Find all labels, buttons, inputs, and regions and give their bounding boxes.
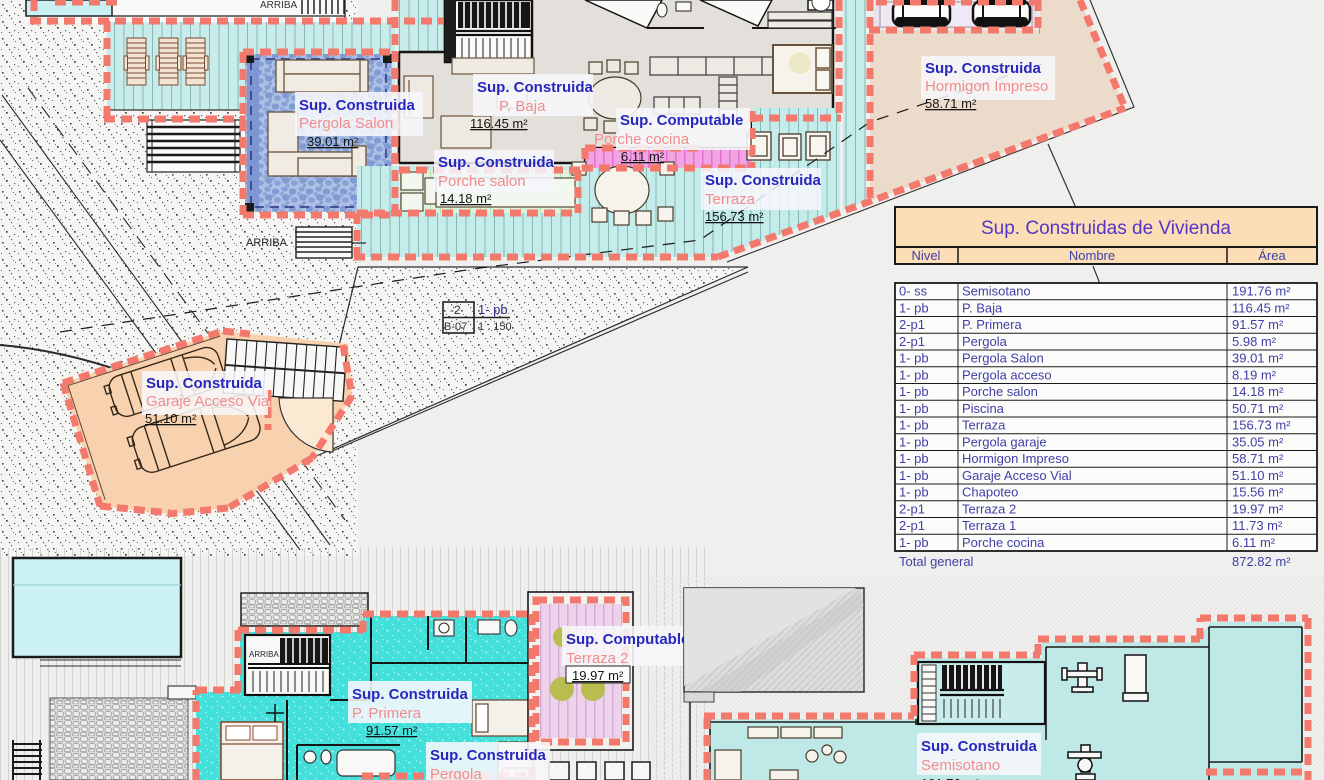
svg-text:P. Primera: P. Primera xyxy=(962,317,1022,332)
svg-text:91.57 m²: 91.57 m² xyxy=(366,723,418,738)
svg-text:58.71 m²: 58.71 m² xyxy=(925,96,977,111)
svg-text:14.18 m²: 14.18 m² xyxy=(1232,384,1284,399)
svg-text:1- pb: 1- pb xyxy=(478,302,508,317)
svg-text:Garaje Acceso Vial: Garaje Acceso Vial xyxy=(146,393,272,410)
svg-text:Pergola: Pergola xyxy=(962,334,1008,349)
svg-text:Terraza 1: Terraza 1 xyxy=(962,518,1016,533)
svg-text:6.11 m²: 6.11 m² xyxy=(1232,535,1276,550)
svg-text:1- pb: 1- pb xyxy=(899,418,929,433)
svg-text:Sup. Computable: Sup. Computable xyxy=(566,631,689,648)
svg-text:Sup. Construida: Sup. Construida xyxy=(352,686,468,703)
svg-text:Porche salon: Porche salon xyxy=(438,173,526,190)
svg-text:Piscina: Piscina xyxy=(962,401,1005,416)
svg-text:1- pb: 1- pb xyxy=(899,434,929,449)
svg-text:39.01 m²: 39.01 m² xyxy=(1232,351,1284,366)
svg-text:19.97 m²: 19.97 m² xyxy=(572,668,624,683)
svg-text:Hormigon Impreso: Hormigon Impreso xyxy=(962,451,1069,466)
svg-text:Terraza: Terraza xyxy=(705,191,756,208)
svg-text:Nivel: Nivel xyxy=(912,248,941,263)
svg-text:191.76 m²: 191.76 m² xyxy=(1232,284,1291,299)
svg-text:116.45 m²: 116.45 m² xyxy=(1232,300,1290,315)
svg-text:58.71 m²: 58.71 m² xyxy=(1232,451,1284,466)
svg-text:Sup. Construida: Sup. Construida xyxy=(477,79,593,96)
svg-text:2-p1: 2-p1 xyxy=(899,334,925,349)
svg-text:Chapoteo: Chapoteo xyxy=(962,485,1018,500)
svg-text:Porche cocina: Porche cocina xyxy=(594,131,690,148)
svg-text:Pergola acceso: Pergola acceso xyxy=(962,367,1052,382)
svg-text:P. Baja: P. Baja xyxy=(962,300,1003,315)
svg-text:Garaje Acceso Vial: Garaje Acceso Vial xyxy=(962,468,1072,483)
svg-text:19.97 m²: 19.97 m² xyxy=(1232,501,1284,516)
svg-text:-2: -2 xyxy=(450,303,461,317)
svg-text:ARRIBA: ARRIBA xyxy=(260,0,298,11)
svg-text:5.98 m²: 5.98 m² xyxy=(1232,334,1277,349)
svg-text:0- ss: 0- ss xyxy=(899,284,928,299)
svg-text:1- pb: 1- pb xyxy=(899,351,929,366)
svg-text:2-p1: 2-p1 xyxy=(899,518,925,533)
svg-text:Semisotano: Semisotano xyxy=(962,284,1031,299)
svg-text:91.57 m²: 91.57 m² xyxy=(1232,317,1284,332)
svg-text:6.11 m²: 6.11 m² xyxy=(621,149,665,164)
svg-text:1- pb: 1- pb xyxy=(899,401,929,416)
svg-text:P. Primera: P. Primera xyxy=(352,705,422,722)
svg-text:15.56 m²: 15.56 m² xyxy=(1232,485,1284,500)
svg-text:51.10 m²: 51.10 m² xyxy=(1232,468,1284,483)
svg-text:Sup. Construidas de Vivienda: Sup. Construidas de Vivienda xyxy=(981,218,1231,239)
svg-text:1- pb: 1- pb xyxy=(899,451,929,466)
svg-text:1- pb: 1- pb xyxy=(899,535,929,550)
svg-text:Sup. Construida: Sup. Construida xyxy=(299,97,415,114)
svg-text:Pergola Salon: Pergola Salon xyxy=(962,351,1044,366)
svg-text:872.82 m²: 872.82 m² xyxy=(1232,554,1291,569)
svg-text:Terraza 2: Terraza 2 xyxy=(962,501,1016,516)
svg-text:1- pb: 1- pb xyxy=(899,367,929,382)
svg-text:1- pb: 1- pb xyxy=(899,384,929,399)
svg-text:Sup. Construida: Sup. Construida xyxy=(705,172,821,189)
svg-text:Sup. Construida: Sup. Construida xyxy=(146,375,262,392)
svg-text:Sup. Computable: Sup. Computable xyxy=(620,112,743,129)
svg-text:B-07: B-07 xyxy=(444,321,467,333)
svg-text:Hormigon Impreso: Hormigon Impreso xyxy=(925,78,1048,95)
svg-text:Pergola garaje: Pergola garaje xyxy=(962,434,1047,449)
svg-text:Porche salon: Porche salon xyxy=(962,384,1038,399)
svg-text:Sup. Construida: Sup. Construida xyxy=(925,60,1041,77)
svg-text:8.19 m²: 8.19 m² xyxy=(1232,367,1277,382)
svg-text:156.73 m²: 156.73 m² xyxy=(705,209,764,224)
svg-text:35.05 m²: 35.05 m² xyxy=(1232,434,1284,449)
svg-text:51.10 m²: 51.10 m² xyxy=(145,411,197,426)
svg-text:156.73 m²: 156.73 m² xyxy=(1232,418,1291,433)
svg-text:Sup. Construida: Sup. Construida xyxy=(438,154,554,171)
svg-text:2-p1: 2-p1 xyxy=(899,501,925,516)
svg-text:Pergola Salon: Pergola Salon xyxy=(299,115,393,132)
svg-text:2-p1: 2-p1 xyxy=(899,317,925,332)
svg-text:Sup. Construida: Sup. Construida xyxy=(430,747,546,764)
svg-text:Terraza 2: Terraza 2 xyxy=(566,650,629,667)
svg-text:Porche cocina: Porche cocina xyxy=(962,535,1045,550)
svg-text:Sup. Construida: Sup. Construida xyxy=(921,738,1037,755)
svg-text:Terraza: Terraza xyxy=(962,418,1006,433)
svg-text:1 : 150: 1 : 150 xyxy=(478,321,512,333)
svg-text:Total general: Total general xyxy=(899,554,974,569)
svg-text:50.71 m²: 50.71 m² xyxy=(1232,401,1284,416)
svg-text:ARRIBA: ARRIBA xyxy=(249,650,279,659)
svg-text:191.76 m²: 191.76 m² xyxy=(921,776,980,780)
svg-text:ARRIBA: ARRIBA xyxy=(246,237,288,249)
svg-text:Semisotano: Semisotano xyxy=(921,757,1000,774)
svg-text:P. Baja: P. Baja xyxy=(499,98,546,115)
svg-text:39.01 m²: 39.01 m² xyxy=(307,134,359,149)
svg-text:1- pb: 1- pb xyxy=(899,485,929,500)
svg-text:1- pb: 1- pb xyxy=(899,468,929,483)
svg-text:14.18 m²: 14.18 m² xyxy=(440,191,492,206)
svg-text:Nombre: Nombre xyxy=(1069,248,1115,263)
svg-text:Pergola: Pergola xyxy=(430,766,482,780)
svg-text:1- pb: 1- pb xyxy=(899,300,929,315)
svg-text:11.73 m²: 11.73 m² xyxy=(1232,518,1283,533)
svg-text:116.45 m²: 116.45 m² xyxy=(470,116,528,131)
svg-text:Área: Área xyxy=(1258,248,1286,263)
